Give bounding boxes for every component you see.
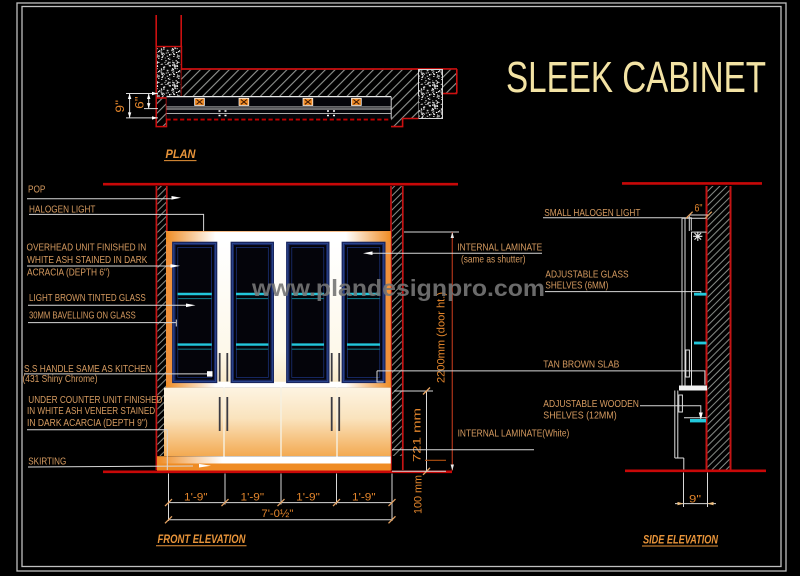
svg-text:(431 Shiny Chrome): (431 Shiny Chrome) [23,374,98,385]
svg-text:LIGHT BROWN TINTED GLASS: LIGHT BROWN TINTED GLASS [29,293,146,304]
svg-text:SLEEK CABINET: SLEEK CABINET [506,53,766,102]
svg-text:SHELVES (6MM): SHELVES (6MM) [545,280,608,291]
svg-text:SMALL HALOGEN LIGHT: SMALL HALOGEN LIGHT [544,208,641,219]
svg-text:9": 9" [115,100,127,113]
svg-text:HALOGEN LIGHT: HALOGEN LIGHT [29,204,96,215]
svg-text:UNDER COUNTER UNIT FINISHED: UNDER COUNTER UNIT FINISHED [28,395,162,406]
svg-text:100 mm: 100 mm [413,475,425,514]
svg-text:30MM BAVELLING ON GLASS: 30MM BAVELLING ON GLASS [29,310,136,321]
svg-text:ACRACIA (DEPTH 6"): ACRACIA (DEPTH 6") [27,268,110,279]
svg-text:1'-9": 1'-9" [184,492,208,504]
svg-text:(same as shutter): (same as shutter) [461,255,526,266]
svg-text:2200mm (door ht.): 2200mm (door ht.) [436,292,448,383]
svg-text:7'-0½": 7'-0½" [261,508,293,520]
svg-text:1'-9": 1'-9" [352,492,376,504]
svg-text:INTERNAL LAMINATE: INTERNAL LAMINATE [457,243,542,254]
svg-text:6": 6" [695,202,703,214]
svg-text:TAN BROWN SLAB: TAN BROWN SLAB [543,360,619,371]
svg-text:PLAN: PLAN [166,147,196,161]
svg-text:721 mm: 721 mm [412,408,424,462]
svg-text:ADJUSTABLE WOODEN: ADJUSTABLE WOODEN [543,399,639,410]
svg-text:9": 9" [689,494,701,506]
svg-text:FRONT ELEVATION: FRONT ELEVATION [158,532,246,546]
svg-text:6": 6" [135,96,147,109]
svg-text:IN WHITE ASH VENEER STAINED: IN WHITE ASH VENEER STAINED [27,406,155,417]
svg-text:POP: POP [28,185,46,196]
svg-text:OVERHEAD UNIT FINISHED IN: OVERHEAD UNIT FINISHED IN [27,243,147,254]
svg-text:ADJUSTABLE GLASS: ADJUSTABLE GLASS [545,270,628,281]
svg-text:INTERNAL LAMINATE(White): INTERNAL LAMINATE(White) [458,429,570,440]
svg-text:WHITE ASH STAINED IN DARK: WHITE ASH STAINED IN DARK [27,255,147,266]
svg-text:1'-9": 1'-9" [241,492,265,504]
svg-text:IN DARK ACARCIA (DEPTH 9"): IN DARK ACARCIA (DEPTH 9") [27,418,148,429]
svg-text:1'-9": 1'-9" [296,492,320,504]
svg-text:www.plandesignpro.com: www.plandesignpro.com [251,275,545,301]
svg-text:SKIRTING: SKIRTING [28,456,66,467]
svg-text:SHELVES (12MM): SHELVES (12MM) [543,410,616,421]
svg-text:SIDE ELEVATION: SIDE ELEVATION [643,533,718,547]
